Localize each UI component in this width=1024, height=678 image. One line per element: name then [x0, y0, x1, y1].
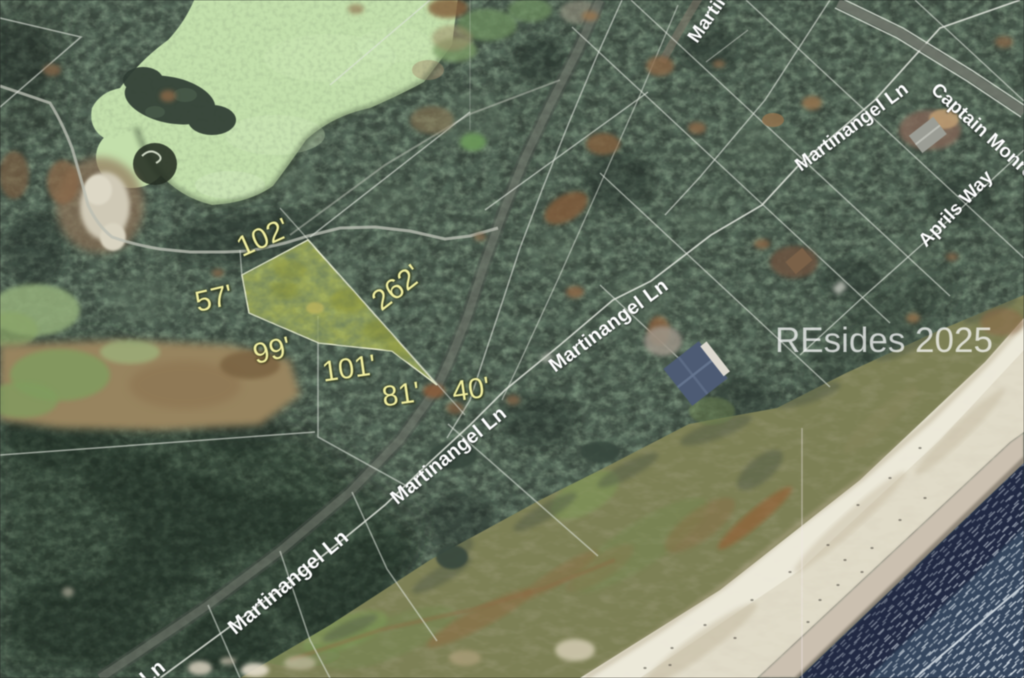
- svg-text:81': 81': [380, 377, 422, 414]
- svg-text:REsides 2025: REsides 2025: [775, 321, 993, 360]
- svg-text:40': 40': [450, 372, 492, 409]
